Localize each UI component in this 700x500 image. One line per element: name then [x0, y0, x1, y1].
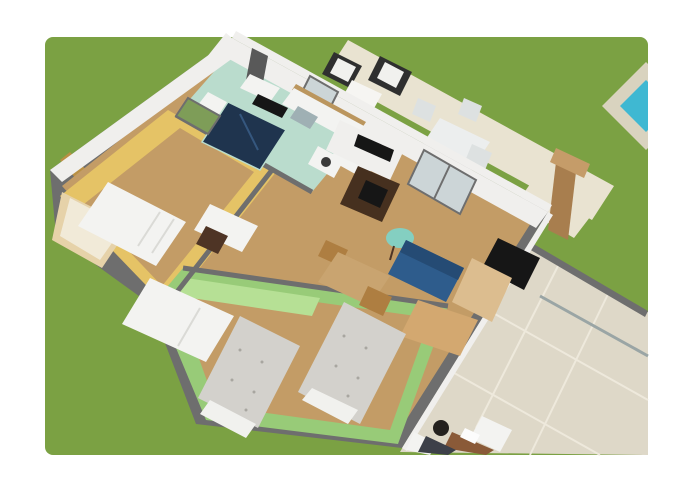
floorplan-render-canvas	[0, 0, 700, 500]
seated-person-head	[433, 420, 449, 436]
washing-machine-door	[321, 157, 331, 167]
floorplan-scene	[0, 0, 700, 500]
